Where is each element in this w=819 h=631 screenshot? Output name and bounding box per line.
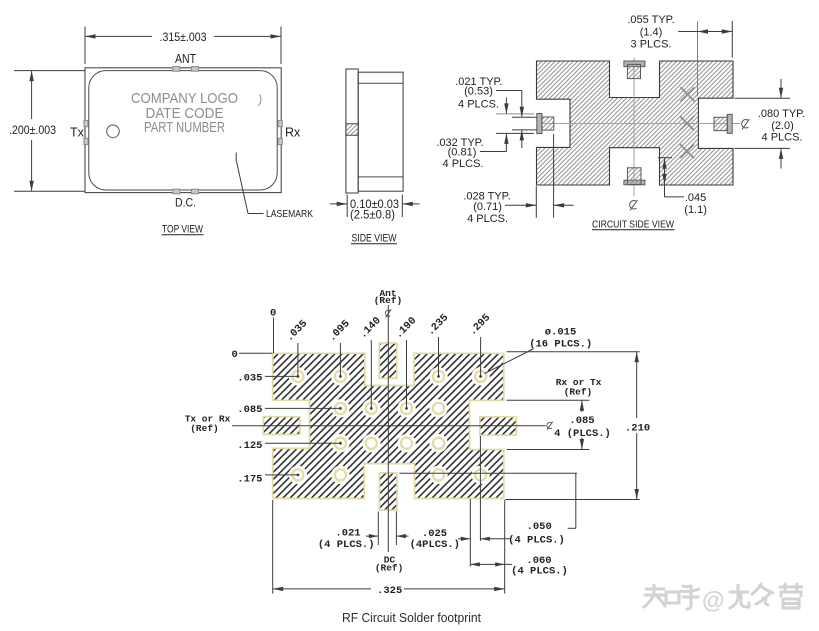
svg-text:4 (PLCS.): 4 (PLCS.) bbox=[554, 428, 611, 440]
svg-text:(Ref): (Ref) bbox=[564, 386, 593, 397]
svg-text:0: 0 bbox=[232, 349, 238, 361]
svg-text:4 PLCS.: 4 PLCS. bbox=[762, 132, 803, 144]
svg-text:.175: .175 bbox=[237, 473, 262, 485]
svg-text:.315±.003: .315±.003 bbox=[160, 30, 207, 44]
svg-text:4 PLCS.: 4 PLCS. bbox=[443, 158, 484, 170]
svg-text:ø.015: ø.015 bbox=[545, 327, 577, 339]
svg-text:TOP VIEW: TOP VIEW bbox=[162, 224, 203, 236]
svg-text:.200±.003: .200±.003 bbox=[9, 123, 56, 137]
svg-text:(0.53): (0.53) bbox=[464, 86, 493, 98]
svg-text:LASEMARK: LASEMARK bbox=[266, 209, 313, 220]
svg-text:CIRCUIT SIDE VIEW: CIRCUIT SIDE VIEW bbox=[592, 220, 674, 231]
svg-text:.325: .325 bbox=[377, 585, 402, 597]
svg-text:.085: .085 bbox=[569, 415, 594, 427]
svg-text:.095: .095 bbox=[326, 318, 352, 344]
svg-text:(4 PLCS.): (4 PLCS.) bbox=[511, 566, 568, 578]
svg-text:(Ref): (Ref) bbox=[374, 295, 403, 306]
svg-text:@: @ bbox=[702, 587, 724, 613]
svg-text:.210: .210 bbox=[625, 422, 650, 434]
svg-text:.035: .035 bbox=[284, 318, 310, 344]
svg-text:(16 PLCS.): (16 PLCS.) bbox=[529, 338, 592, 350]
svg-text:(1.4): (1.4) bbox=[640, 27, 663, 39]
svg-text:(4 PLCS.): (4 PLCS.) bbox=[508, 534, 565, 546]
svg-text:4 PLCS.: 4 PLCS. bbox=[467, 213, 508, 225]
svg-text:(0.71): (0.71) bbox=[473, 201, 502, 213]
svg-text:SIDE VIEW: SIDE VIEW bbox=[352, 233, 397, 245]
svg-text:.125: .125 bbox=[237, 440, 262, 452]
svg-text:.045: .045 bbox=[685, 192, 706, 204]
svg-text:.050: .050 bbox=[527, 521, 552, 533]
svg-text:(2.5±0.8): (2.5±0.8) bbox=[350, 209, 395, 221]
svg-text:.055 TYP.: .055 TYP. bbox=[627, 14, 674, 26]
svg-text:.190: .190 bbox=[393, 315, 419, 341]
svg-text:(4PLCS.): (4PLCS.) bbox=[410, 539, 460, 551]
svg-text:4 PLCS.: 4 PLCS. bbox=[458, 99, 499, 111]
svg-text:.295: .295 bbox=[467, 312, 493, 338]
svg-text:.085: .085 bbox=[237, 404, 262, 416]
svg-text:(0.81): (0.81) bbox=[448, 147, 477, 159]
svg-text:.035: .035 bbox=[237, 372, 262, 384]
svg-text:.080 TYP.: .080 TYP. bbox=[758, 108, 805, 120]
svg-text:3 PLCS.: 3 PLCS. bbox=[631, 39, 672, 51]
svg-text:D.C.: D.C. bbox=[175, 196, 196, 210]
svg-text:(4 PLCS.): (4 PLCS.) bbox=[318, 539, 375, 551]
svg-text:.235: .235 bbox=[425, 312, 451, 338]
svg-text:(Ref): (Ref) bbox=[190, 423, 219, 434]
svg-text:ANT: ANT bbox=[175, 52, 196, 66]
svg-text:Rx: Rx bbox=[285, 126, 301, 140]
svg-text:Tx: Tx bbox=[70, 126, 85, 140]
svg-text:.140: .140 bbox=[357, 315, 383, 341]
svg-text:(1.1): (1.1) bbox=[684, 204, 707, 216]
svg-text:RF Circuit Solder footprint: RF Circuit Solder footprint bbox=[342, 610, 481, 625]
svg-text:PART NUMBER: PART NUMBER bbox=[144, 119, 225, 136]
svg-text:.021: .021 bbox=[335, 527, 360, 539]
svg-text:(2.0): (2.0) bbox=[771, 120, 794, 132]
svg-text:(Ref): (Ref) bbox=[375, 563, 404, 574]
svg-text:): ) bbox=[257, 92, 263, 107]
